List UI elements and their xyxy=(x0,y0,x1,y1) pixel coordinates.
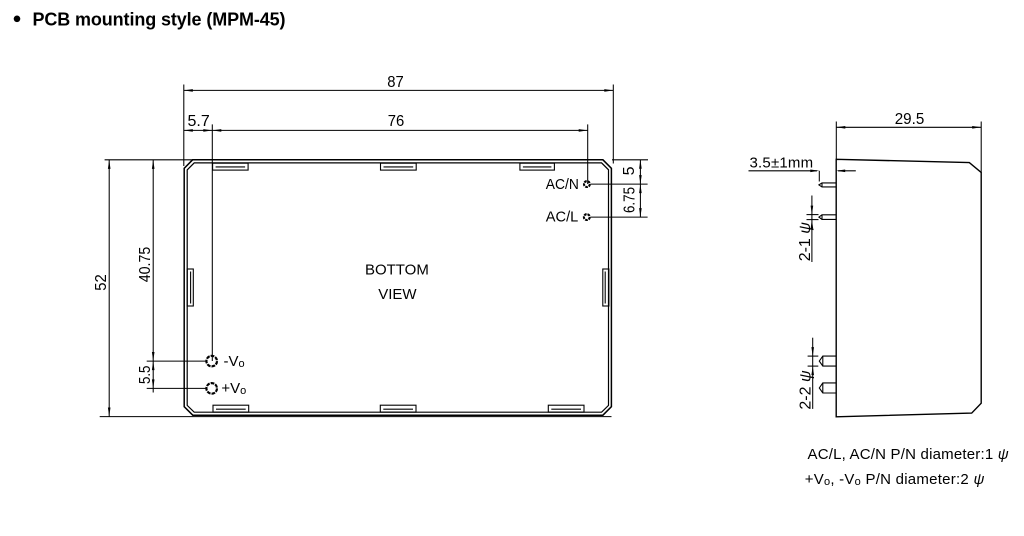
svg-text:+Vo, -Vo P/N diameter:2 ψ: +Vo, -Vo P/N diameter:2 ψ xyxy=(805,471,985,488)
svg-text:VIEW: VIEW xyxy=(378,286,417,303)
svg-text:BOTTOM: BOTTOM xyxy=(365,261,429,278)
svg-text:AC/L: AC/L xyxy=(546,209,579,226)
svg-text:5.5: 5.5 xyxy=(137,365,154,384)
svg-text:-Vo: -Vo xyxy=(224,353,245,370)
svg-text:2-1 ψ: 2-1 ψ xyxy=(797,222,814,262)
svg-text:5: 5 xyxy=(621,166,638,175)
svg-text:2-2 ψ: 2-2 ψ xyxy=(798,370,815,410)
svg-text:+Vo: +Vo xyxy=(221,380,246,397)
svg-text:AC/N: AC/N xyxy=(546,176,579,193)
svg-text:AC/L, AC/N P/N diameter:1 ψ: AC/L, AC/N P/N diameter:1 ψ xyxy=(808,446,1009,463)
svg-text:29.5: 29.5 xyxy=(895,111,925,128)
svg-text:52: 52 xyxy=(93,274,110,291)
svg-text:87: 87 xyxy=(387,74,404,91)
svg-text:76: 76 xyxy=(388,113,405,130)
svg-text:5.7: 5.7 xyxy=(188,113,210,130)
svg-text:3.5±1mm: 3.5±1mm xyxy=(750,154,814,171)
svg-text:PCB mounting style (MPM-45): PCB mounting style (MPM-45) xyxy=(33,9,286,29)
svg-text:40.75: 40.75 xyxy=(137,247,154,283)
svg-text:6.75: 6.75 xyxy=(622,187,639,213)
